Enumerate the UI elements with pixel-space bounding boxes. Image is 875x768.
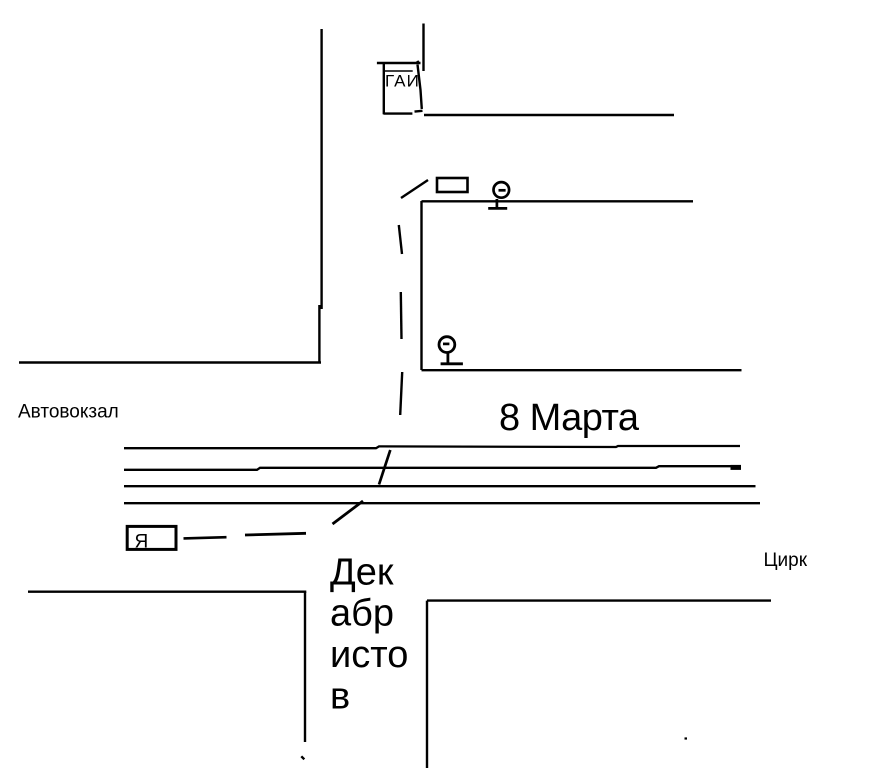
svg-text:8 Марта: 8 Марта — [499, 397, 640, 439]
svg-text:Дек: Дек — [330, 551, 394, 593]
svg-text:в: в — [330, 676, 350, 718]
svg-text:Я: Я — [135, 532, 149, 553]
svg-text:ГАИ: ГАИ — [385, 71, 420, 90]
svg-text:исто: исто — [330, 634, 408, 676]
svg-text:абр: абр — [330, 593, 394, 635]
svg-text:Цирк: Цирк — [764, 550, 808, 571]
svg-text:Автовокзал: Автовокзал — [18, 401, 119, 422]
